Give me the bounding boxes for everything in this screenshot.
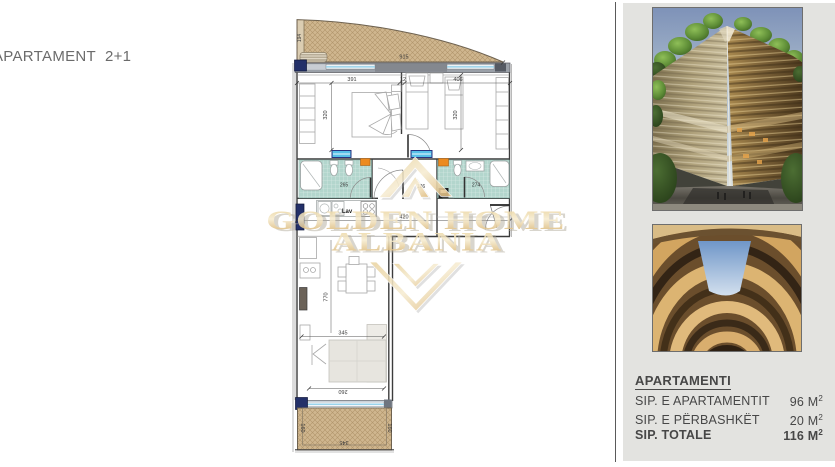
svg-text:ALBANIA: ALBANIA [331,227,502,256]
svg-text:345: 345 [339,439,348,445]
svg-text:391: 391 [347,77,356,83]
svg-text:194: 194 [297,34,303,43]
svg-text:915: 915 [399,55,408,61]
svg-text:345: 345 [338,331,347,337]
svg-text:770: 770 [324,292,330,301]
svg-text:320: 320 [453,110,459,119]
svg-text:160: 160 [386,423,392,432]
svg-text:265: 265 [340,183,349,189]
svg-text:320: 320 [323,110,329,119]
svg-text:406: 406 [453,77,462,83]
svg-text:160: 160 [299,423,305,432]
svg-text:260: 260 [338,388,347,394]
svg-text:274: 274 [472,183,481,189]
